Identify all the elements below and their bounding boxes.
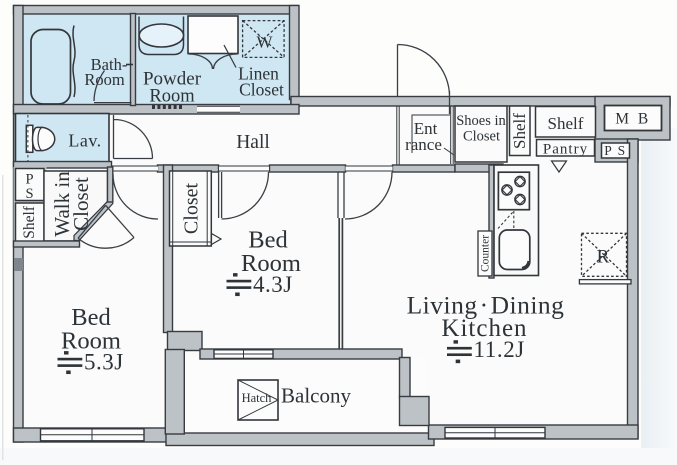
svg-text:5.3J: 5.3J <box>84 350 124 375</box>
svg-text:Lav.: Lav. <box>68 131 101 151</box>
svg-text:W: W <box>256 33 273 52</box>
svg-text:Hatch: Hatch <box>242 391 273 405</box>
svg-text:Closet: Closet <box>69 177 93 231</box>
svg-text:Closet: Closet <box>239 80 284 100</box>
svg-text:4.3J: 4.3J <box>253 272 293 297</box>
svg-text:S: S <box>25 186 33 202</box>
svg-text:Room: Room <box>84 70 125 89</box>
svg-text:Shelf: Shelf <box>21 205 38 239</box>
svg-text:Pantry: Pantry <box>543 142 588 158</box>
svg-text:Shelf: Shelf <box>548 114 584 133</box>
svg-text:M B: M B <box>615 111 651 128</box>
svg-text:Closet: Closet <box>181 183 203 235</box>
svg-text:Hall: Hall <box>236 132 270 153</box>
svg-text:Counter: Counter <box>480 235 492 272</box>
svg-text:Shoes in: Shoes in <box>456 113 506 129</box>
svg-text:Shelf: Shelf <box>510 113 529 149</box>
svg-text:P S: P S <box>604 143 626 158</box>
svg-text:Room: Room <box>149 87 195 107</box>
svg-text:R: R <box>597 247 610 268</box>
svg-text:Balcony: Balcony <box>281 384 351 408</box>
svg-text:rance: rance <box>405 135 442 154</box>
svg-text:Closet: Closet <box>463 129 500 145</box>
svg-text:11.2J: 11.2J <box>474 337 525 362</box>
